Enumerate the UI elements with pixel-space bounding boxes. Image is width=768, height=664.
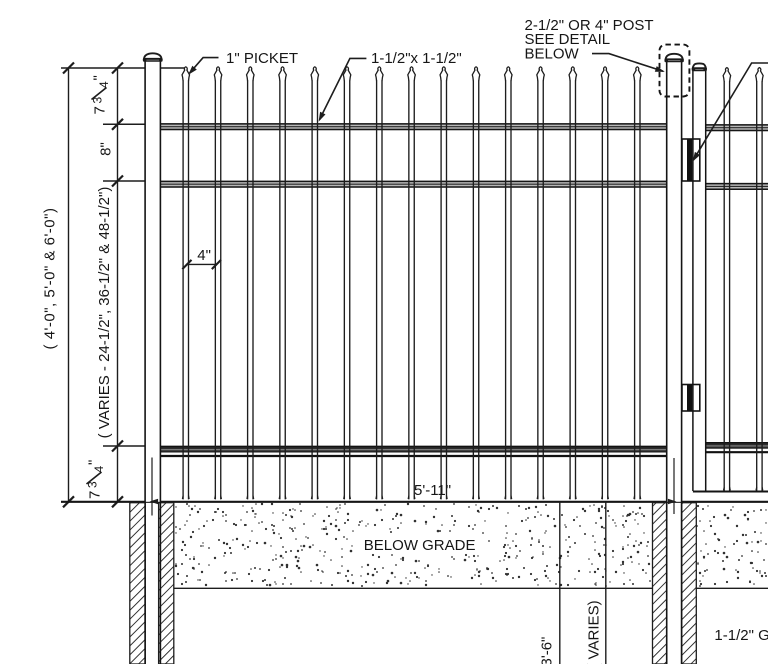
svg-text:8": 8" <box>98 142 115 156</box>
svg-text:( VARIES): ( VARIES) <box>586 600 603 664</box>
svg-text:7: 7 <box>92 106 109 114</box>
svg-text:5'-11": 5'-11" <box>414 482 451 499</box>
svg-text:( 4'-0", 5'-0" & 6'-0"): ( 4'-0", 5'-0" & 6'-0") <box>42 208 59 350</box>
svg-text:3'-6": 3'-6" <box>539 637 556 664</box>
svg-text:( VARIES - 24-1/2", 36-1/2" &: ( VARIES - 24-1/2", 36-1/2" & 48-1/2") <box>96 187 113 439</box>
svg-text:BELOW GRADE: BELOW GRADE <box>364 537 476 554</box>
svg-text:": " <box>86 460 103 465</box>
svg-text:4: 4 <box>97 81 111 88</box>
svg-text:1" PICKET: 1" PICKET <box>226 50 298 67</box>
svg-text:4": 4" <box>197 247 211 264</box>
svg-text:4: 4 <box>92 466 106 473</box>
svg-text:1-1/2" GAT: 1-1/2" GAT <box>714 627 768 644</box>
svg-text:": " <box>91 75 108 80</box>
svg-text:1-1/2"x 1-1/2": 1-1/2"x 1-1/2" <box>371 50 462 67</box>
svg-text:7: 7 <box>87 491 104 499</box>
